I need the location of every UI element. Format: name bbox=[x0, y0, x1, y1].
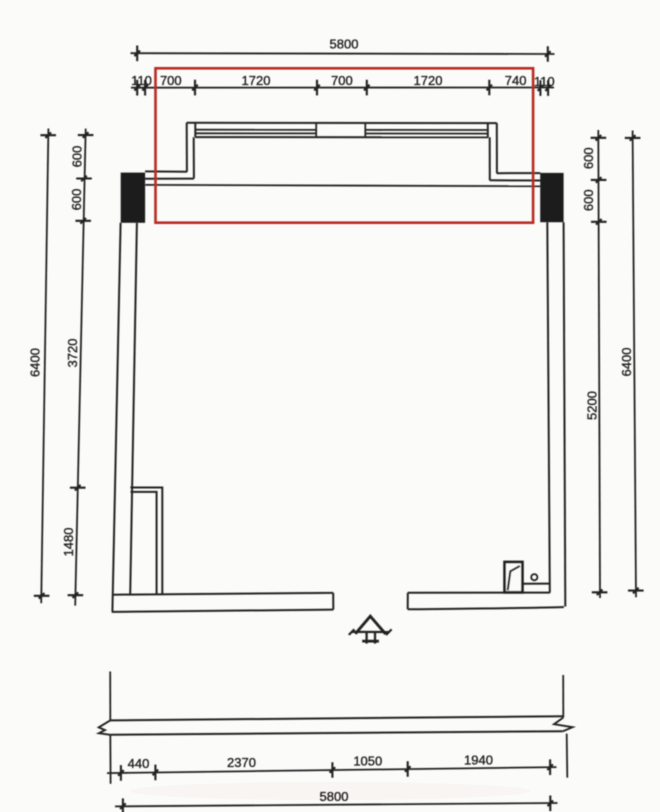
svg-text:600: 600 bbox=[70, 146, 85, 168]
svg-text:600: 600 bbox=[581, 147, 596, 169]
svg-text:3720: 3720 bbox=[65, 339, 80, 368]
svg-text:110: 110 bbox=[131, 73, 152, 88]
svg-text:440: 440 bbox=[128, 756, 150, 771]
svg-text:6400: 6400 bbox=[619, 348, 634, 377]
svg-text:5800: 5800 bbox=[320, 789, 349, 804]
svg-text:1720: 1720 bbox=[414, 73, 443, 88]
svg-text:1480: 1480 bbox=[61, 528, 76, 557]
svg-text:1050: 1050 bbox=[353, 753, 382, 768]
svg-text:1940: 1940 bbox=[464, 752, 493, 767]
svg-text:6400: 6400 bbox=[28, 348, 43, 377]
svg-text:700: 700 bbox=[331, 73, 353, 88]
svg-text:740: 740 bbox=[505, 73, 527, 88]
svg-text:600: 600 bbox=[581, 189, 596, 211]
svg-text:5200: 5200 bbox=[584, 391, 599, 420]
svg-text:2370: 2370 bbox=[227, 755, 256, 770]
svg-text:600: 600 bbox=[69, 189, 84, 211]
svg-text:700: 700 bbox=[160, 73, 182, 88]
svg-text:1720: 1720 bbox=[242, 73, 271, 88]
svg-text:5800: 5800 bbox=[330, 37, 359, 52]
svg-text:110: 110 bbox=[534, 74, 555, 89]
